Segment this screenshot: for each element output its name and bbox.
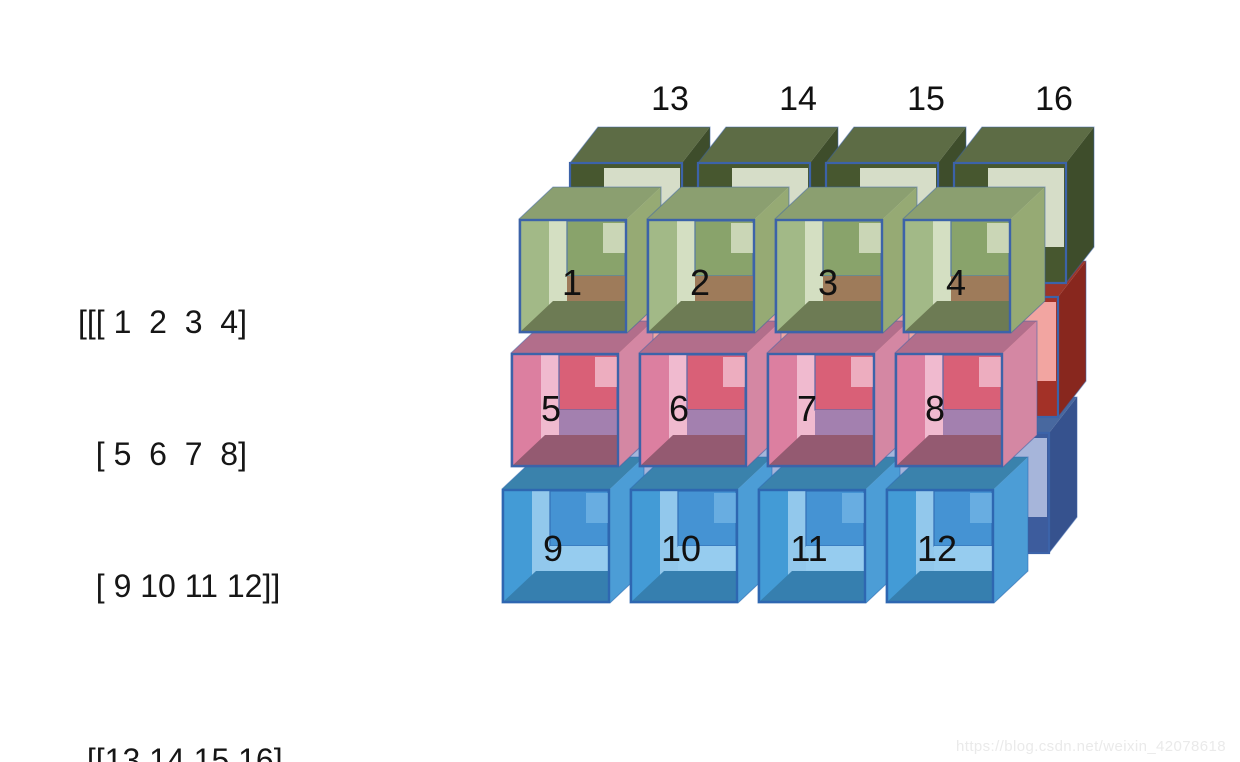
back-layer-label-16: 16 xyxy=(1012,80,1096,119)
cube-value-label: 11 xyxy=(790,528,827,569)
back-layer-label-14: 14 xyxy=(756,80,840,119)
back-layer-label-13: 13 xyxy=(628,80,712,119)
cube-10: 10 xyxy=(630,457,772,603)
page-canvas: [[[ 1 2 3 4] [ 5 6 7 8] [ 9 10 11 12]] [… xyxy=(0,0,1240,762)
cube-12: 12 xyxy=(886,457,1028,603)
cube-value-label: 3 xyxy=(818,262,838,303)
cube-3: 3 xyxy=(775,187,917,333)
cube-7: 7 xyxy=(767,321,909,467)
cube-11: 11 xyxy=(758,457,900,603)
back-layer-label-15: 15 xyxy=(884,80,968,119)
cube-value-label: 8 xyxy=(925,388,945,429)
cube-6: 6 xyxy=(639,321,781,467)
cube-4: 4 xyxy=(903,187,1045,333)
cube-value-label: 7 xyxy=(797,388,817,429)
cube-9: 9 xyxy=(502,457,644,603)
cube-8: 8 xyxy=(895,321,1037,467)
cube-value-label: 2 xyxy=(690,262,710,303)
cube-5: 5 xyxy=(511,321,653,467)
watermark-url: https://blog.csdn.net/weixin_42078618 xyxy=(956,738,1226,755)
cube-2: 2 xyxy=(647,187,789,333)
cube-value-label: 4 xyxy=(946,262,966,303)
cube-value-label: 9 xyxy=(543,528,563,569)
cube-value-label: 12 xyxy=(917,528,957,569)
cube-value-label: 5 xyxy=(541,388,561,429)
cube-1: 1 xyxy=(519,187,661,333)
cube-value-label: 10 xyxy=(661,528,701,569)
cube-value-label: 1 xyxy=(562,262,582,303)
cube-value-label: 6 xyxy=(669,388,689,429)
